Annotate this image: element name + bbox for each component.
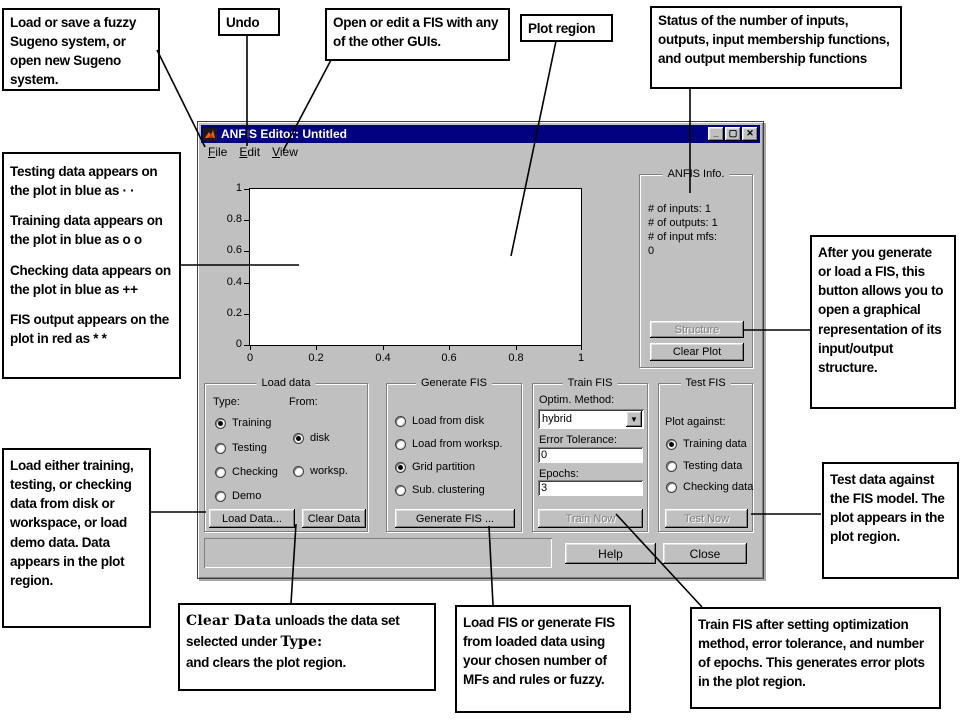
anfis-info-panel: ANFIS Info. # of inputs: 1 # of outputs:… xyxy=(639,174,753,368)
title-bar[interactable]: ANFIS Editor: Untitled _ ▢ ✕ xyxy=(201,125,760,143)
train-fis-panel: Train FIS Optim. Method: hybrid ▼ Error … xyxy=(532,383,648,532)
epochs-label: Epochs: xyxy=(539,468,579,480)
train-now-button[interactable]: Train Now xyxy=(538,509,643,528)
callout-load-save: Load or save a fuzzy Sugeno system, or o… xyxy=(2,8,160,91)
close-dialog-button-label: Close xyxy=(690,547,721,561)
y-tick-0_8: 0.8 xyxy=(212,213,242,225)
callout-open-edit-text: Open or edit a FIS with any of the other… xyxy=(333,15,498,49)
generate-fis-button-label: Generate FIS ... xyxy=(416,513,494,525)
load-data-panel: Load data Type: From: Training Testing C… xyxy=(204,383,368,532)
help-button[interactable]: Help xyxy=(565,543,656,564)
structure-button-label: Structure xyxy=(675,324,720,336)
radio-worksp-label: worksp. xyxy=(310,465,348,477)
train-fis-title: Train FIS xyxy=(563,377,618,389)
callout-status-text: Status of the number of inputs, outputs,… xyxy=(658,13,889,66)
radio-load-from-worksp-icon xyxy=(395,439,406,450)
callout-train-fis-text: Train FIS after setting optimization met… xyxy=(698,617,925,689)
chevron-down-icon[interactable]: ▼ xyxy=(626,411,642,427)
generate-fis-panel: Generate FIS Load from disk Load from wo… xyxy=(386,383,522,532)
callout-structure-text: After you generate or load a FIS, this b… xyxy=(818,245,943,375)
radio-training-data-icon xyxy=(666,439,677,450)
radio-worksp[interactable]: worksp. xyxy=(293,465,348,477)
callout-markers: Testing data appears on the plot in blue… xyxy=(2,152,181,379)
radio-checking-label: Checking xyxy=(232,466,278,478)
radio-training-data[interactable]: Training data xyxy=(666,438,747,450)
menu-bar: File Edit View xyxy=(202,145,298,163)
help-button-label: Help xyxy=(598,547,623,561)
radio-disk-icon xyxy=(293,433,304,444)
callout-load-save-text: Load or save a fuzzy Sugeno system, or o… xyxy=(10,15,136,87)
status-message-box xyxy=(204,538,552,568)
load-data-title: Load data xyxy=(257,377,316,389)
plot-against-label: Plot against: xyxy=(665,416,726,428)
radio-testing[interactable]: Testing xyxy=(215,442,267,454)
window-title: ANFIS Editor: Untitled xyxy=(221,127,707,141)
x-tick-0_2: 0.2 xyxy=(299,352,333,364)
matlab-icon xyxy=(203,128,217,141)
radio-training-data-label: Training data xyxy=(683,438,747,450)
radio-sub-clustering[interactable]: Sub. clustering xyxy=(395,484,485,496)
generate-fis-title: Generate FIS xyxy=(416,377,492,389)
radio-load-from-disk-icon xyxy=(395,416,406,427)
menu-view[interactable]: View xyxy=(272,145,298,163)
radio-demo[interactable]: Demo xyxy=(215,490,261,502)
callout-undo: Undo xyxy=(218,8,280,36)
callout-clear-data-part2: and clears the plot region. xyxy=(186,655,346,670)
close-button[interactable]: ✕ xyxy=(742,127,758,141)
generate-fis-button[interactable]: Generate FIS ... xyxy=(395,509,515,528)
callout-structure: After you generate or load a FIS, this b… xyxy=(810,235,956,409)
type-label: Type: xyxy=(213,396,240,408)
radio-training-label: Training xyxy=(232,417,271,429)
x-tick-0_6: 0.6 xyxy=(432,352,466,364)
radio-sub-clustering-icon xyxy=(395,485,406,496)
radio-load-from-worksp-label: Load from worksp. xyxy=(412,438,502,450)
radio-load-from-disk[interactable]: Load from disk xyxy=(395,415,484,427)
callout-load-either: Load either training, testing, or checki… xyxy=(2,448,151,628)
clear-plot-button-label: Clear Plot xyxy=(673,346,721,358)
callout-test-data-text: Test data against the FIS model. The plo… xyxy=(830,472,945,544)
callout-clear-data-bold2: Type: xyxy=(281,634,323,650)
radio-worksp-icon xyxy=(293,466,304,477)
callout-marker-training: Training data appears on the plot in blu… xyxy=(10,211,173,249)
maximize-icon: ▢ xyxy=(729,128,738,138)
test-fis-panel: Test FIS Plot against: Training data Tes… xyxy=(658,383,753,532)
callout-status: Status of the number of inputs, outputs,… xyxy=(650,6,902,89)
clear-data-button-label: Clear Data xyxy=(308,513,361,525)
error-tolerance-input[interactable] xyxy=(538,447,643,463)
callout-load-fis-text: Load FIS or generate FIS from loaded dat… xyxy=(463,615,615,687)
radio-grid-partition[interactable]: Grid partition xyxy=(395,461,475,473)
callout-marker-testing: Testing data appears on the plot in blue… xyxy=(10,162,173,200)
radio-testing-label: Testing xyxy=(232,442,267,454)
train-now-button-label: Train Now xyxy=(566,513,616,525)
test-fis-title: Test FIS xyxy=(680,377,730,389)
optim-method-value: hybrid xyxy=(542,413,572,425)
plot-region: 1 0.8 0.6 0.4 0.2 0 0 0.2 0.4 0.6 0.8 1 xyxy=(249,188,582,346)
info-num-mfs-val: 0 xyxy=(648,245,654,257)
optim-method-label: Optim. Method: xyxy=(539,394,614,406)
radio-training[interactable]: Training xyxy=(215,417,271,429)
radio-grid-partition-icon xyxy=(395,462,406,473)
close-icon: ✕ xyxy=(746,128,754,138)
radio-load-from-disk-label: Load from disk xyxy=(412,415,484,427)
radio-checking-data[interactable]: Checking data xyxy=(666,481,753,493)
maximize-button[interactable]: ▢ xyxy=(725,127,741,141)
radio-testing-data-label: Testing data xyxy=(683,460,742,472)
minimize-icon: _ xyxy=(713,128,718,138)
y-tick-0_2: 0.2 xyxy=(212,307,242,319)
callout-clear-data-bold1: Clear Data xyxy=(186,613,271,629)
callout-load-fis: Load FIS or generate FIS from loaded dat… xyxy=(455,605,631,713)
callout-undo-text: Undo xyxy=(226,15,259,30)
callout-open-edit: Open or edit a FIS with any of the other… xyxy=(325,8,510,61)
radio-checking-data-icon xyxy=(666,482,677,493)
structure-button[interactable]: Structure xyxy=(650,321,744,338)
menu-file[interactable]: File xyxy=(208,145,227,163)
callout-plot-region: Plot region xyxy=(520,14,613,42)
x-tick-0_4: 0.4 xyxy=(366,352,400,364)
radio-testing-data[interactable]: Testing data xyxy=(666,460,742,472)
epochs-input[interactable] xyxy=(538,480,643,496)
callout-plot-region-text: Plot region xyxy=(528,21,595,36)
callout-clear-data: Clear Data unloads the data set selected… xyxy=(178,603,436,691)
minimize-button[interactable]: _ xyxy=(708,127,724,141)
callout-marker-fis-output: FIS output appears on the plot in red as… xyxy=(10,310,173,348)
radio-load-from-worksp[interactable]: Load from worksp. xyxy=(395,438,502,450)
radio-sub-clustering-label: Sub. clustering xyxy=(412,484,485,496)
info-num-mfs: # of input mfs: xyxy=(648,231,717,243)
close-dialog-button[interactable]: Close xyxy=(663,543,747,564)
callout-load-either-text: Load either training, testing, or checki… xyxy=(10,458,133,588)
callout-train-fis: Train FIS after setting optimization met… xyxy=(690,607,941,709)
radio-disk[interactable]: disk xyxy=(293,432,330,444)
radio-demo-label: Demo xyxy=(232,490,261,502)
radio-grid-partition-label: Grid partition xyxy=(412,461,475,473)
callout-test-data: Test data against the FIS model. The plo… xyxy=(822,462,959,579)
y-tick-0_6: 0.6 xyxy=(212,244,242,256)
radio-testing-icon xyxy=(215,443,226,454)
y-tick-0_4: 0.4 xyxy=(212,276,242,288)
y-tick-1: 1 xyxy=(212,182,242,194)
error-tolerance-label: Error Tolerance: xyxy=(539,434,617,446)
menu-edit[interactable]: Edit xyxy=(239,145,260,163)
x-tick-0_8: 0.8 xyxy=(499,352,533,364)
radio-checking-data-label: Checking data xyxy=(683,481,753,493)
clear-plot-button[interactable]: Clear Plot xyxy=(650,343,744,361)
callout-marker-checking: Checking data appears on the plot in blu… xyxy=(10,261,173,299)
optim-method-dropdown[interactable]: hybrid ▼ xyxy=(538,409,644,429)
info-num-inputs: # of inputs: 1 xyxy=(648,203,711,215)
radio-training-icon xyxy=(215,418,226,429)
anfis-info-title: ANFIS Info. xyxy=(663,168,730,180)
radio-testing-data-icon xyxy=(666,461,677,472)
test-now-button[interactable]: Test Now xyxy=(665,509,748,528)
radio-disk-label: disk xyxy=(310,432,330,444)
test-now-button-label: Test Now xyxy=(684,513,729,525)
radio-checking-icon xyxy=(215,467,226,478)
radio-demo-icon xyxy=(215,491,226,502)
info-num-outputs: # of outputs: 1 xyxy=(648,217,718,229)
load-data-button[interactable]: Load Data... xyxy=(209,509,295,528)
anfis-editor-window: ANFIS Editor: Untitled _ ▢ ✕ File Edit V… xyxy=(197,121,764,579)
radio-checking[interactable]: Checking xyxy=(215,466,278,478)
y-tick-0: 0 xyxy=(212,338,242,350)
x-tick-0: 0 xyxy=(233,352,267,364)
x-tick-1: 1 xyxy=(564,352,598,364)
clear-data-button[interactable]: Clear Data xyxy=(302,509,366,528)
from-label: From: xyxy=(289,396,318,408)
figure-canvas: Load or save a fuzzy Sugeno system, or o… xyxy=(0,0,962,721)
load-data-button-label: Load Data... xyxy=(222,513,282,525)
